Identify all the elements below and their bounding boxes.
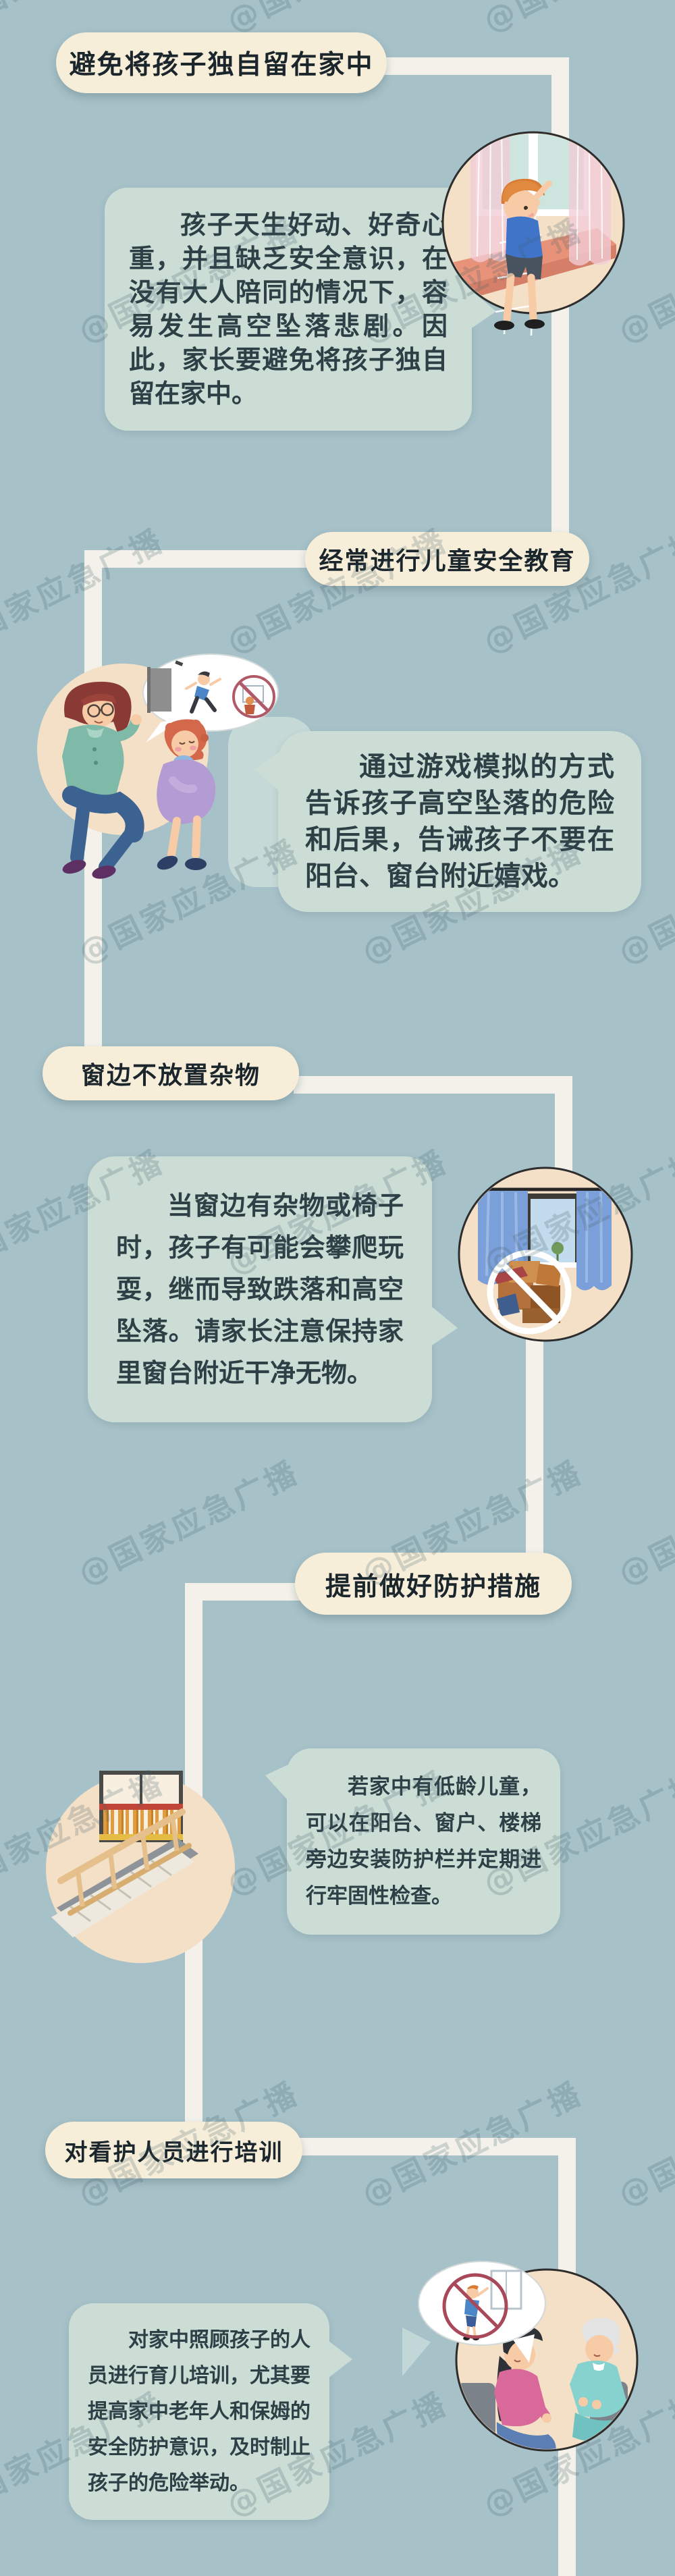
section-5-title: 对看护人员进行培训 (65, 2134, 283, 2167)
thought-bubble-icon (143, 654, 278, 743)
bubble-tail (325, 2338, 352, 2380)
balcony-rail-icon (99, 1773, 183, 1840)
boy-climbing-window-icon (435, 128, 631, 365)
watermark-text: @国家应急广播 (610, 2069, 675, 2215)
watermark-text: @国家应急广播 (70, 1448, 306, 1594)
section-5-title-pill: 对看护人员进行培训 (45, 2122, 302, 2178)
section-1-title: 避免将孩子独自留在家中 (69, 44, 373, 82)
section-2-body-text: 通过游戏模拟的方式告诉孩子高空坠落的危险和后果，告诫孩子不要在阳台、窗台附近嬉戏… (305, 749, 614, 894)
illustration-teaching-child (27, 648, 290, 934)
bubble-tail (265, 1763, 291, 1804)
section-1-body-text: 孩子天生好动、好奇心重，并且缺乏安全意识，在没有大人陪同的情况下，容易发生高空坠… (129, 208, 448, 410)
illustration-guard-rail-stairs (38, 1767, 240, 1986)
illustration-caregiver-training (413, 2248, 653, 2576)
connector-line (93, 550, 309, 568)
illustration-window-clutter-prohibited (458, 1166, 636, 1346)
illustration-boy-climbing-window (435, 128, 631, 367)
bubble-tail (428, 1304, 458, 1348)
teaching-child-icon (27, 648, 290, 932)
no-climbing-sign-icon (234, 676, 274, 717)
section-3-title: 窗边不放置杂物 (81, 1056, 261, 1091)
section-3-body-text: 当窗边有杂物或椅子时，孩子有可能会攀爬玩耍，继而导致跌落和高空坠落。请家长注意保… (116, 1185, 404, 1394)
section-2-title: 经常进行儿童安全教育 (319, 541, 575, 576)
guard-rail-stairs-icon (38, 1767, 240, 1983)
section-4-speech-bubble: 若家中有低龄儿童，可以在阳台、窗户、楼梯旁边安装防护栏并定期进行牢固性检查。 (287, 1748, 560, 1935)
connector-line (371, 57, 569, 75)
infographic-canvas: 避免将孩子独自留在家中 经常进行儿童安全教育 窗边不放置杂物 提前做好防护措施 … (0, 0, 675, 2576)
caregiver-training-icon (413, 2248, 653, 2576)
section-1-title-pill: 避免将孩子独自留在家中 (56, 32, 387, 93)
section-3-title-pill: 窗边不放置杂物 (43, 1046, 299, 1100)
section-4-title-pill: 提前做好防护措施 (295, 1553, 572, 1615)
section-2-speech-bubble: 通过游戏模拟的方式告诉孩子高空坠落的危险和后果，告诫孩子不要在阳台、窗台附近嬉戏… (278, 731, 641, 912)
section-4-body-text: 若家中有低龄儿童，可以在阳台、窗户、楼梯旁边安装防护栏并定期进行牢固性检查。 (306, 1769, 541, 1914)
section-5-body-text: 对家中照顾孩子的人员进行育儿培训，尤其要提高家中老年人和保姆的安全防护意识，及时… (88, 2322, 310, 2501)
connector-line (194, 1583, 300, 1601)
connector-line (297, 2138, 576, 2155)
section-3-speech-bubble: 当窗边有杂物或椅子时，孩子有可能会攀爬玩耍，继而导致跌落和高空坠落。请家长注意保… (88, 1156, 432, 1422)
section-5-speech-bubble: 对家中照顾孩子的人员进行育儿培训，尤其要提高家中老年人和保姆的安全防护意识，及时… (69, 2303, 329, 2520)
section-4-title: 提前做好防护措施 (325, 1565, 541, 1603)
watermark-text: @国家应急广播 (475, 0, 675, 41)
window-clutter-icon (458, 1166, 636, 1343)
section-1-speech-bubble: 孩子天生好动、好奇心重，并且缺乏安全意识，在没有大人陪同的情况下，容易发生高空坠… (105, 188, 472, 431)
watermark-text: @国家应急广播 (610, 1448, 675, 1594)
section-2-title-pill: 经常进行儿童安全教育 (305, 532, 589, 586)
connector-line (294, 1076, 572, 1094)
